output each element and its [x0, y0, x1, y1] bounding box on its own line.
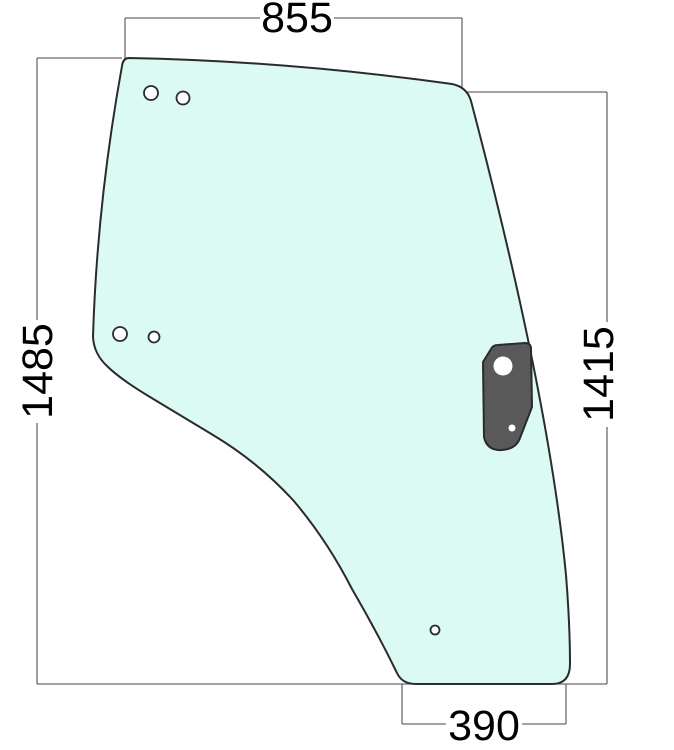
dimension-right-height-value: 1415 — [575, 326, 623, 422]
mounting-hole-bottom — [431, 626, 440, 635]
technical-drawing-canvas: 855 1485 1415 390 — [0, 0, 674, 750]
mounting-hole-middle-2 — [149, 332, 160, 343]
dimension-left-height-value: 1485 — [14, 323, 62, 419]
mounting-hole-top-2 — [177, 92, 190, 105]
bracket-hole-small — [509, 425, 516, 432]
dimension-bottom-width-value: 390 — [448, 702, 520, 750]
dimension-top-width-value: 855 — [261, 0, 333, 42]
bracket-hole-large — [494, 357, 513, 376]
mounting-hole-top-1 — [144, 86, 158, 100]
mounting-hole-middle-1 — [113, 327, 127, 341]
